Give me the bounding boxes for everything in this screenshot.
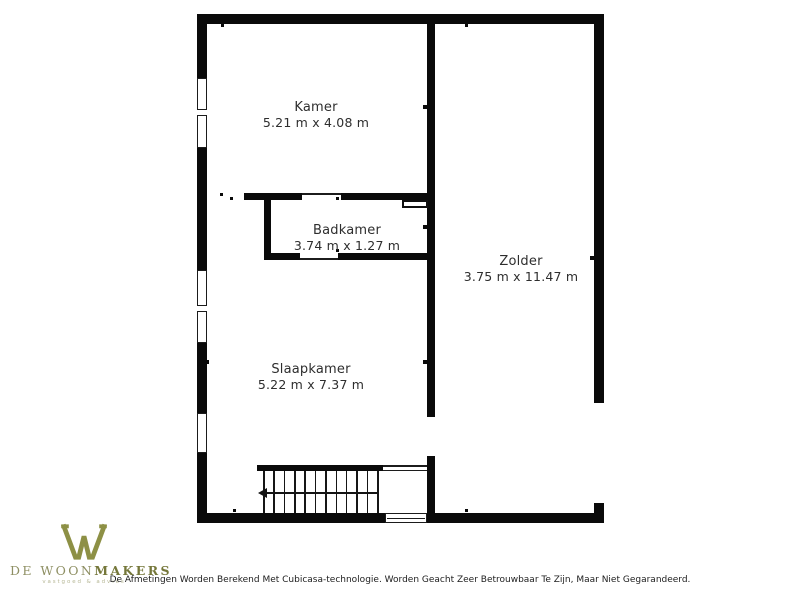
wall-right (594, 14, 604, 403)
window-symbol (197, 270, 207, 343)
joint-marker (465, 24, 468, 27)
wall-left (197, 343, 207, 413)
wall-divider (427, 24, 435, 417)
joint-marker (221, 24, 224, 27)
room-dimensions: 5.22 m x 7.37 m (258, 377, 364, 392)
wall-top (197, 14, 604, 24)
door-symbol (300, 258, 338, 260)
joint-marker (336, 197, 339, 200)
window-symbol (197, 413, 207, 453)
wall-bottom (197, 513, 385, 523)
door-symbol (302, 193, 341, 195)
room-name: Slaapkamer (258, 362, 364, 377)
wall-badkamer-left (264, 193, 271, 257)
room-name: Badkamer (294, 223, 400, 238)
wall-left (197, 14, 207, 78)
stairs-direction-arrow (258, 488, 267, 498)
joint-marker (423, 105, 427, 109)
window-symbol (385, 513, 427, 523)
joint-marker (423, 225, 427, 229)
joint-marker (465, 509, 468, 512)
stair-tread (377, 471, 379, 513)
w-monogram-icon (10, 523, 158, 561)
room-name: Kamer (263, 100, 369, 115)
window-mullion (197, 109, 207, 116)
wall-badkamer-top (244, 193, 302, 200)
stairs-direction-arrow (266, 492, 377, 494)
window-symbol (197, 78, 207, 148)
joint-marker (220, 193, 223, 196)
room-dimensions: 3.74 m x 1.27 m (294, 238, 400, 253)
wall-badkamer-bottom (264, 253, 300, 260)
room-label-kamer: Kamer 5.21 m x 4.08 m (263, 100, 369, 130)
window-mullion (387, 518, 425, 521)
wall-bottom (427, 513, 604, 523)
brand-name-prefix: DE WOON (10, 563, 94, 578)
stairs-landing-edge (383, 465, 427, 467)
room-label-badkamer: Badkamer 3.74 m x 1.27 m (294, 223, 400, 253)
room-name: Zolder (464, 254, 578, 269)
joint-marker (423, 360, 427, 364)
joint-marker (233, 509, 236, 512)
disclaimer-text: De Afmetingen Worden Berekend Met Cubica… (110, 575, 691, 585)
room-label-slaapkamer: Slaapkamer 5.22 m x 7.37 m (258, 362, 364, 392)
wall-left (197, 148, 207, 270)
floorplan: Kamer 5.21 m x 4.08 m Badkamer 3.74 m x … (0, 0, 800, 600)
door-symbol (402, 200, 428, 208)
room-label-zolder: Zolder 3.75 m x 11.47 m (464, 254, 578, 284)
wall-divider (427, 456, 435, 513)
room-dimensions: 3.75 m x 11.47 m (464, 269, 578, 284)
room-dimensions: 5.21 m x 4.08 m (263, 115, 369, 130)
stairs-landing-edge (383, 470, 427, 472)
joint-marker (590, 256, 594, 260)
wall-badkamer-top (341, 193, 427, 200)
joint-marker (230, 197, 233, 200)
wall-badkamer-bottom (338, 253, 427, 260)
joint-marker (205, 360, 209, 364)
window-mullion (197, 305, 207, 312)
